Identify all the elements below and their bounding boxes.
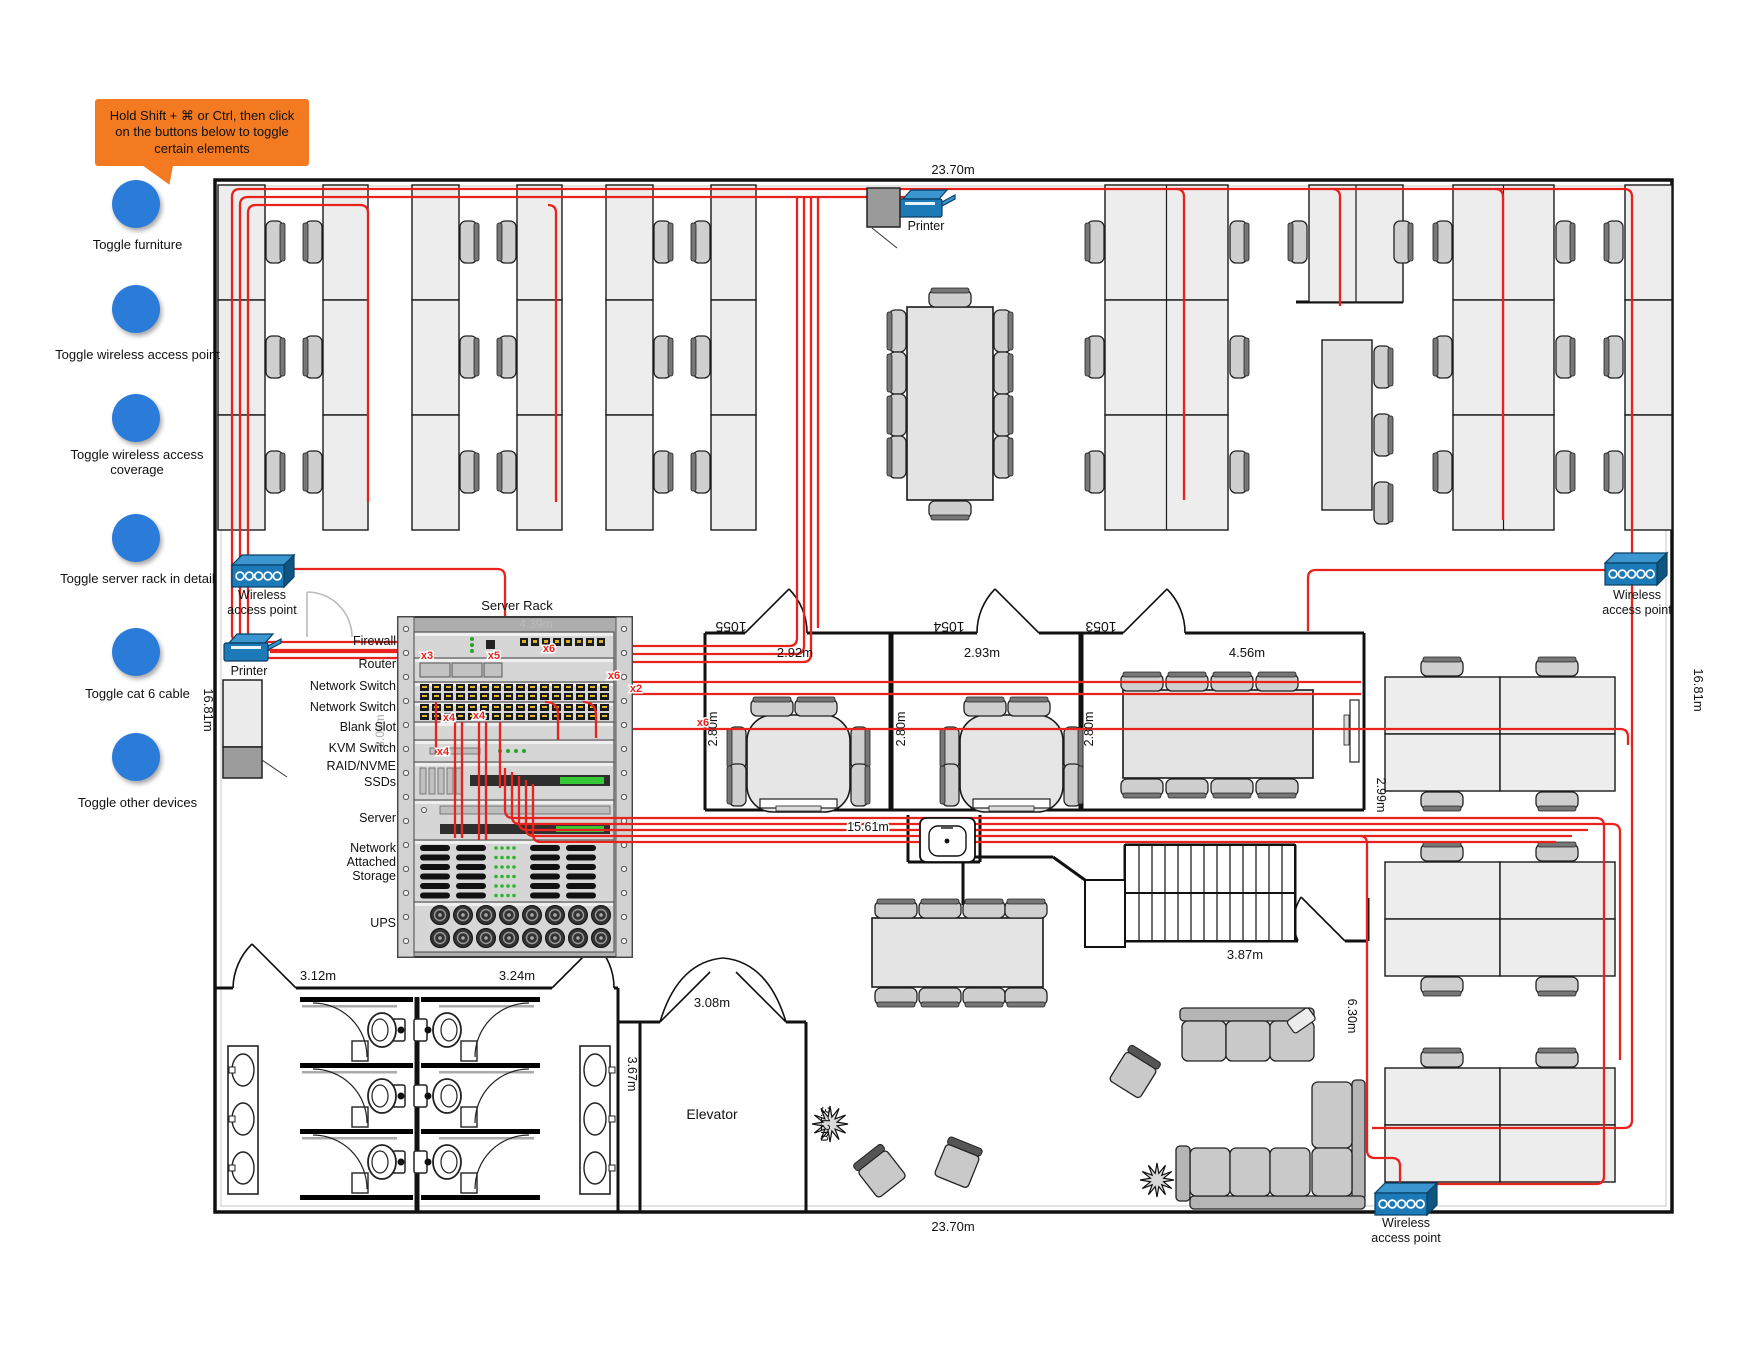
- chair: [1211, 779, 1253, 798]
- label: 4.39m: [519, 617, 552, 631]
- chair: [654, 451, 673, 493]
- chair: [875, 899, 917, 918]
- label: 3.67m: [625, 1057, 639, 1092]
- restrooms: [228, 997, 615, 1200]
- toggle-cat6-cable-label: Toggle cat 6 cable: [45, 686, 230, 701]
- armchair: [934, 1136, 983, 1188]
- desk-column: [711, 185, 756, 530]
- dimension-width-top: 23.70m: [931, 162, 974, 177]
- water-fountain-icon: [920, 818, 975, 862]
- round-table: [727, 697, 870, 812]
- cable-multiplier-label: x6: [697, 717, 709, 729]
- rack-slot-label: Blank Slot: [340, 720, 397, 734]
- chair: [1536, 1048, 1578, 1067]
- large-table: [872, 918, 1043, 987]
- chair: [994, 394, 1013, 436]
- door: [307, 592, 352, 637]
- toggle-furniture-label: Toggle furniture: [45, 237, 230, 252]
- sink-icon: [584, 1152, 606, 1184]
- chair: [1604, 451, 1623, 493]
- chair: [266, 451, 285, 493]
- chair: [303, 336, 322, 378]
- wireless-access-point-icon: [1605, 553, 1667, 585]
- toggle-wireless-access-point-button[interactable]: [112, 285, 160, 333]
- chair: [266, 336, 285, 378]
- rack-unit-blank: [414, 722, 614, 740]
- chair: [1421, 657, 1463, 676]
- wireless-ap-label: access point: [1371, 1231, 1441, 1245]
- desk-column: [1309, 185, 1403, 302]
- chair: [1121, 779, 1163, 798]
- toggle-server-rack-button[interactable]: [112, 514, 160, 562]
- rack-unit-fw: [414, 632, 614, 658]
- chair: [1421, 1048, 1463, 1067]
- plant-icon: [1140, 1163, 1174, 1197]
- chair: [1230, 336, 1249, 378]
- chair: [1556, 451, 1575, 493]
- desk-column: [323, 185, 368, 530]
- chair: [497, 221, 516, 263]
- toggle-other-devices-label: Toggle other devices: [45, 795, 230, 810]
- toilet-icon: [414, 1079, 461, 1113]
- desk-column: [1105, 185, 1228, 530]
- rack-unit-sw: [414, 682, 614, 702]
- label: 3.12m: [300, 968, 336, 983]
- conference-table: [907, 307, 993, 500]
- chair: [1166, 779, 1208, 798]
- desk-group: [1385, 1068, 1615, 1182]
- chair: [460, 451, 479, 493]
- rack-unit-router: [414, 658, 614, 682]
- chair: [795, 697, 837, 716]
- rack-slot-label: RAID/NVME: [327, 759, 396, 773]
- desk-column: [606, 185, 653, 530]
- toilet-icon: [368, 1013, 405, 1047]
- chair: [887, 310, 906, 352]
- toggle-wireless-access-point-label: Toggle wireless access point: [45, 347, 230, 362]
- cable-multiplier-label: x5: [488, 650, 500, 662]
- chair: [1374, 482, 1393, 524]
- door: [660, 958, 723, 1022]
- rack-unit-nas: [414, 840, 614, 902]
- cabinet: [223, 747, 262, 778]
- chair: [940, 727, 959, 769]
- closet: [1085, 880, 1125, 947]
- chair: [1005, 899, 1047, 918]
- rack-slot-label: KVM Switch: [329, 741, 396, 755]
- label: 3.87m: [1227, 947, 1263, 962]
- chair: [1604, 221, 1623, 263]
- cable-multiplier-label: x4: [437, 746, 450, 758]
- printer-icon: [898, 190, 955, 217]
- wireless-ap-label: Wireless: [238, 588, 286, 602]
- chair: [851, 727, 870, 769]
- chair: [727, 727, 746, 769]
- label: 15.61m: [847, 820, 889, 834]
- label: 6.30m: [1345, 999, 1359, 1034]
- chair: [1085, 451, 1104, 493]
- instruction-text: Hold Shift + ⌘ or Ctrl, then click on th…: [110, 108, 295, 156]
- chair: [691, 221, 710, 263]
- chair: [497, 451, 516, 493]
- rack-unit-raid: [414, 762, 614, 800]
- chair: [1604, 336, 1623, 378]
- wireless-ap-label: Wireless: [1382, 1216, 1430, 1230]
- chair: [1556, 221, 1575, 263]
- printer-label: Printer: [231, 664, 268, 678]
- server-rack-title: Server Rack: [481, 598, 553, 613]
- chair: [1536, 977, 1578, 996]
- label: 3.24m: [499, 968, 535, 983]
- rack-slot-label: Server: [359, 811, 396, 825]
- chair: [1433, 451, 1452, 493]
- sink-icon: [584, 1054, 606, 1086]
- door: [977, 589, 1039, 633]
- door: [723, 958, 786, 1022]
- chair: [963, 899, 1005, 918]
- chair: [994, 310, 1013, 352]
- chair: [1256, 779, 1298, 798]
- rack-unit-ups: [414, 902, 614, 952]
- toilet-icon: [368, 1145, 405, 1179]
- armchair: [852, 1143, 906, 1198]
- chair: [266, 221, 285, 263]
- rack-slot-label: UPS: [370, 916, 396, 930]
- chair: [1230, 451, 1249, 493]
- elevator-label: Elevator: [686, 1106, 738, 1122]
- side-table: [1322, 340, 1372, 510]
- cat6-cable: [1308, 570, 1605, 631]
- chair: [1433, 221, 1452, 263]
- label: 4.56m: [1229, 645, 1265, 660]
- cable-multiplier-label: x4: [443, 712, 456, 724]
- door: [1294, 897, 1345, 941]
- desk-group: [1385, 677, 1615, 791]
- label: 3.12m: [818, 1107, 832, 1142]
- chair: [727, 764, 746, 806]
- dimension-width-bottom: 23.70m: [931, 1219, 974, 1234]
- label: 2.92m: [777, 645, 813, 660]
- cable-multiplier-label: x4: [473, 710, 486, 722]
- toilet-icon: [414, 1145, 461, 1179]
- chair: [497, 336, 516, 378]
- cat6-cable: [292, 569, 505, 616]
- chair: [654, 336, 673, 378]
- toilet-icon: [414, 1013, 461, 1047]
- cable-multiplier-label: x3: [421, 650, 433, 662]
- rack-slot-label: Network: [350, 841, 397, 855]
- chair: [1064, 764, 1083, 806]
- chair: [654, 221, 673, 263]
- door: [233, 944, 296, 988]
- stairs: [1125, 845, 1295, 941]
- label: 2.93m: [964, 645, 1000, 660]
- desk-column: [412, 185, 459, 530]
- chair: [1394, 221, 1413, 263]
- floor-plan-canvas: Hold Shift + ⌘ or Ctrl, then click on th…: [0, 0, 1760, 1360]
- rack-slot-label: Router: [358, 657, 396, 671]
- toilet-icon: [368, 1079, 405, 1113]
- toggle-server-rack-label: Toggle server rack in detail: [45, 571, 230, 586]
- chair: [1008, 697, 1050, 716]
- chair: [460, 336, 479, 378]
- sink-icon: [584, 1103, 606, 1135]
- label: 3.08m: [694, 995, 730, 1010]
- chair: [887, 352, 906, 394]
- tv-icon: [1350, 700, 1359, 762]
- toggle-wireless-coverage-button[interactable]: [112, 394, 160, 442]
- wireless-ap-label: access point: [1602, 603, 1672, 617]
- label: 2.80m: [894, 712, 908, 747]
- label: 2.99m: [1374, 778, 1388, 813]
- chair: [691, 336, 710, 378]
- chair: [1421, 977, 1463, 996]
- chair: [994, 352, 1013, 394]
- chair: [919, 899, 961, 918]
- wireless-ap-label: Wireless: [1613, 588, 1661, 602]
- armchair: [1109, 1044, 1162, 1099]
- chair: [929, 288, 971, 307]
- chair: [851, 764, 870, 806]
- conference-table: [1123, 690, 1313, 778]
- toggle-cat6-cable-button[interactable]: [112, 628, 160, 676]
- floor-plan-svg: 23.70m23.70m16.81m16.81mServer Rack4.39m…: [0, 0, 1760, 1360]
- label: 2.80m: [1082, 712, 1096, 747]
- printer-label: Printer: [908, 219, 945, 233]
- rack-slot-label: Network Switch: [310, 679, 396, 693]
- chair: [1085, 336, 1104, 378]
- chair: [964, 697, 1006, 716]
- chair: [1374, 414, 1393, 456]
- rack-slot-label: Firewall: [353, 634, 396, 648]
- wireless-access-point-icon: [1375, 1183, 1437, 1215]
- toggle-other-devices-button[interactable]: [112, 733, 160, 781]
- dimension-height-right: 16.81m: [1691, 668, 1706, 711]
- chair: [303, 221, 322, 263]
- cable-multiplier-label: x2: [630, 683, 642, 695]
- toggle-furniture-button[interactable]: [112, 180, 160, 228]
- chair: [1421, 792, 1463, 811]
- chair: [887, 394, 906, 436]
- chair: [963, 988, 1005, 1007]
- cable-multiplier-label: x6: [608, 670, 620, 682]
- chair: [875, 988, 917, 1007]
- rack-slot-label: SSDs: [364, 775, 396, 789]
- chair: [1536, 657, 1578, 676]
- chair: [1556, 336, 1575, 378]
- lounge: [812, 1007, 1365, 1209]
- rack-slot-label: Attached: [347, 855, 396, 869]
- chair: [919, 988, 961, 1007]
- instruction-callout: Hold Shift + ⌘ or Ctrl, then click on th…: [95, 99, 309, 166]
- chair: [1433, 336, 1452, 378]
- chair: [887, 436, 906, 478]
- chair: [1374, 346, 1393, 388]
- toggle-wireless-coverage-label: Toggle wireless access coverage: [57, 447, 217, 477]
- chair: [940, 764, 959, 806]
- room-number: 1054: [933, 619, 964, 635]
- wireless-ap-label: access point: [227, 603, 297, 617]
- wireless-access-point-icon: [232, 555, 294, 587]
- rack-slot-label: Network Switch: [310, 700, 396, 714]
- sofa-cushion: [1182, 1021, 1226, 1061]
- chair: [691, 451, 710, 493]
- room-number: 1055: [715, 619, 746, 635]
- chair: [1536, 842, 1578, 861]
- sofa-cushion: [1226, 1021, 1270, 1061]
- chair: [994, 436, 1013, 478]
- chair: [1085, 221, 1104, 263]
- chair: [1421, 842, 1463, 861]
- rack-slot-label: Storage: [352, 869, 396, 883]
- cabinet: [867, 188, 900, 227]
- chair: [1064, 727, 1083, 769]
- chair: [1536, 792, 1578, 811]
- server-rack: [398, 617, 632, 957]
- round-table: [940, 697, 1083, 812]
- chair: [1288, 221, 1307, 263]
- desk-group: [1385, 862, 1615, 976]
- room-number: 1053: [1085, 619, 1116, 635]
- chair: [1230, 221, 1249, 263]
- chair: [1005, 988, 1047, 1007]
- cable-multiplier-label: x6: [543, 643, 555, 655]
- door: [1123, 589, 1185, 633]
- chair: [460, 221, 479, 263]
- chair: [929, 501, 971, 520]
- chair: [303, 451, 322, 493]
- chair: [751, 697, 793, 716]
